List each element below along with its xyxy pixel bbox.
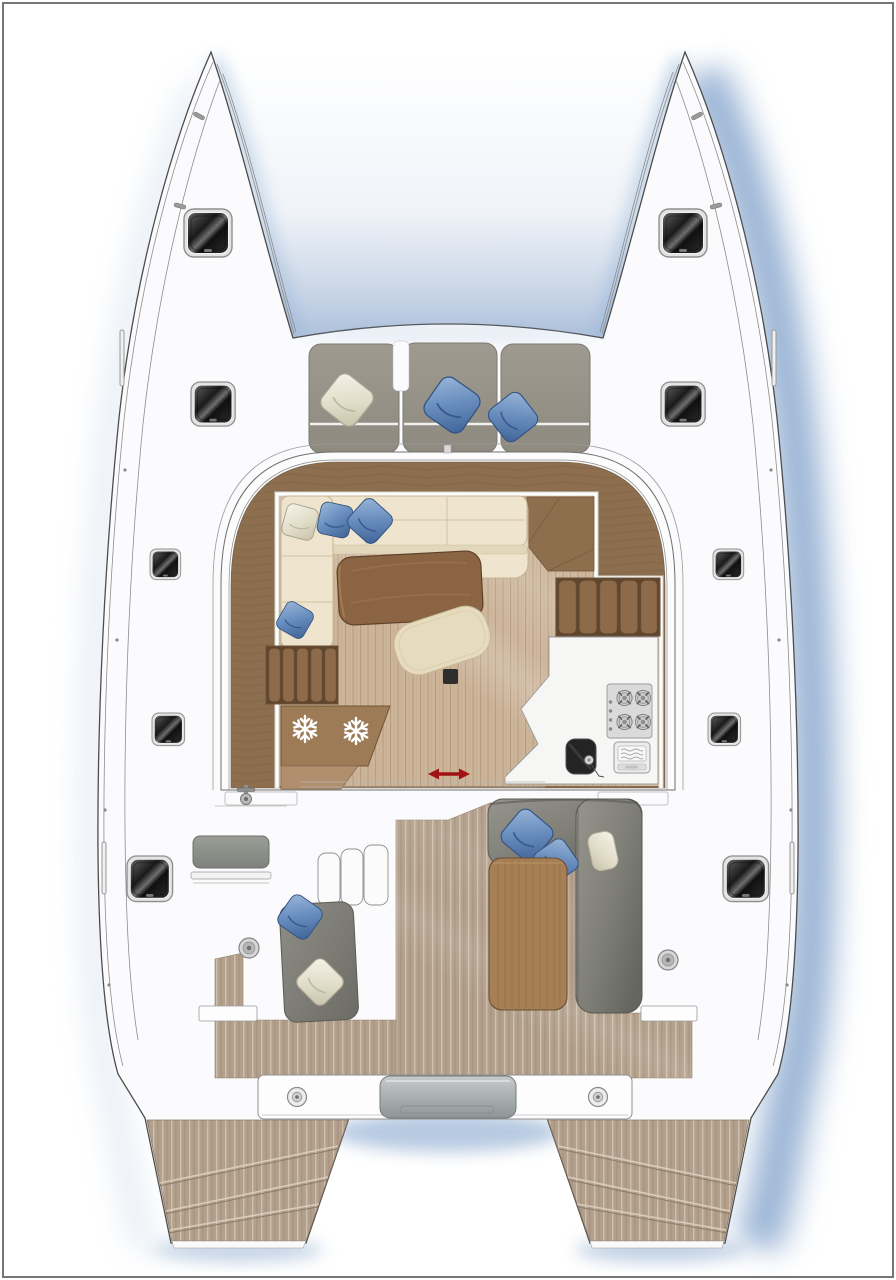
hatch: [708, 713, 741, 746]
table-post: [443, 669, 458, 684]
swim-steps-port: [147, 1120, 348, 1248]
oven: [614, 742, 650, 773]
hatch: [659, 209, 707, 257]
companionway-steps-starboard: [556, 578, 660, 636]
beam-fitting: [288, 1088, 307, 1107]
hatch: [152, 713, 185, 746]
port-bench-shelf: [191, 872, 271, 879]
hatch: [184, 209, 232, 257]
hatch: [191, 382, 235, 426]
beam-fitting: [589, 1088, 608, 1107]
boarding-gate-stbd: [641, 1006, 697, 1021]
stove: [607, 684, 652, 738]
catamaran-deck-plan: [0, 0, 896, 1280]
davit-pad: [380, 1076, 516, 1118]
hatch: [661, 382, 705, 426]
deck-fitting-stbd: [658, 950, 678, 970]
swim-steps-starboard: [548, 1120, 749, 1248]
hatch: [150, 549, 181, 580]
stbd-cockpit-table: [489, 858, 567, 1010]
mast-step: [444, 445, 451, 453]
hatch: [127, 856, 173, 902]
port-bench: [193, 836, 269, 868]
hatch: [723, 856, 769, 902]
salon: [213, 444, 683, 790]
deck-plan-canvas: [0, 0, 896, 1280]
helm-step-panels: [318, 845, 388, 905]
deck-fitting-port: [239, 938, 259, 958]
cushion-notch: [393, 341, 409, 391]
hatch: [713, 549, 744, 580]
boarding-gate-port: [199, 1006, 257, 1021]
louvered-cabinet-port: [266, 646, 338, 704]
